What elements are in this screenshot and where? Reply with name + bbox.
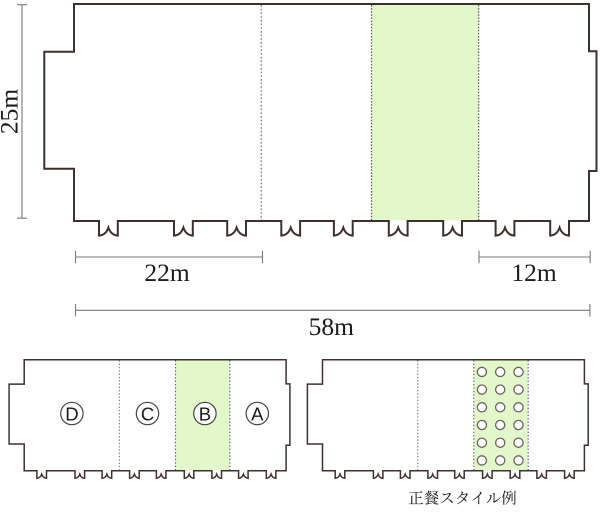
svg-text:B: B (199, 404, 211, 425)
svg-text:25m: 25m (0, 89, 24, 134)
svg-text:12m: 12m (511, 258, 557, 287)
svg-text:D: D (65, 404, 78, 425)
svg-text:58m: 58m (309, 312, 355, 341)
svg-text:C: C (141, 404, 154, 425)
svg-text:22m: 22m (144, 258, 190, 287)
svg-text:A: A (251, 404, 264, 425)
